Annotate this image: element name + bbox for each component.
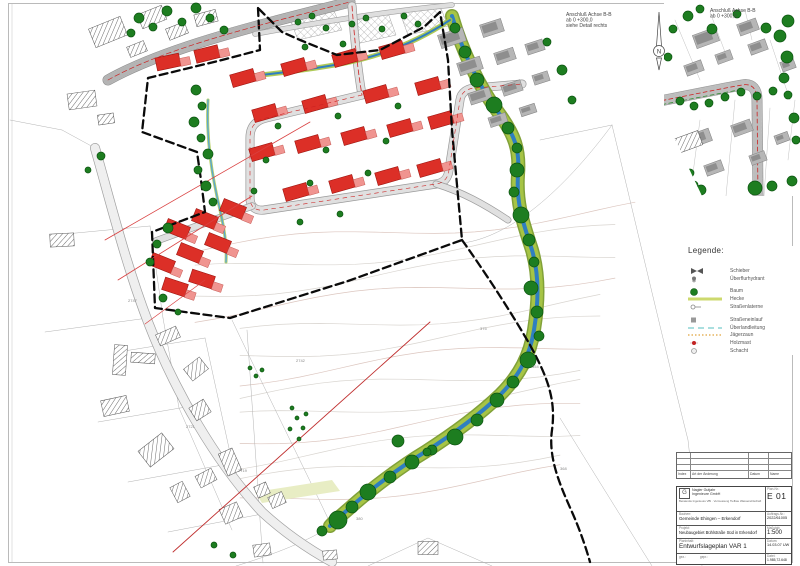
inset-planned-building (666, 189, 677, 198)
existing-building (418, 542, 438, 555)
legend-item: Schacht (688, 347, 796, 355)
baum-icon (688, 288, 730, 296)
planned-house (341, 126, 368, 145)
revision-header-name: Name (768, 471, 791, 478)
road-or-stream (95, 148, 332, 562)
legend-item-label: Baum (730, 288, 743, 294)
legend-item-label: Holzmast (730, 340, 751, 346)
tree-icon (194, 166, 202, 174)
tree-icon (301, 426, 305, 430)
plan-nr-value: E 01 (767, 491, 790, 501)
tree-icon (323, 147, 329, 153)
schacht-icon (688, 347, 730, 355)
existing-building (525, 39, 546, 55)
tree-icon (415, 21, 421, 27)
parcel-line (247, 330, 263, 563)
legend-items: SchieberÜberflurhydrantBaumHeckeStraßenl… (688, 267, 796, 355)
tree-icon (384, 471, 396, 483)
tree-icon (230, 552, 236, 558)
planned-garage (387, 87, 399, 97)
tree-icon (297, 437, 301, 441)
revision-header-row: Index Art der Änderung Datum Name (677, 470, 791, 478)
datei-value: 1.985,72.648 (767, 558, 790, 563)
tree-icon (676, 97, 684, 105)
tree-icon (159, 294, 167, 302)
planned-house (341, 124, 377, 146)
tree-icon (395, 103, 401, 109)
jaegerzaun-icon (688, 331, 730, 339)
existing-building (131, 352, 156, 364)
tree-icon (490, 393, 504, 407)
title-block: Index Art der Änderung Datum Name G Nagl… (676, 452, 792, 565)
planned-house (375, 166, 402, 185)
tree-icon (705, 99, 713, 107)
tree-icon (335, 113, 341, 119)
tree-icon (450, 23, 460, 33)
planinhalt-value: Entwurfslageplan VAR 1 (679, 543, 763, 550)
legend-panel: Legende: SchieberÜberflurhydrantBaumHeck… (688, 246, 796, 355)
planned-garage (273, 145, 285, 155)
road-or-stream (95, 148, 332, 562)
tree-icon (337, 211, 343, 217)
planned-garage (211, 282, 223, 293)
tree-icon (191, 85, 201, 95)
tree-icon (509, 187, 519, 197)
legend-item-label: Überlandleitung (730, 325, 765, 331)
tree-icon (263, 157, 269, 163)
tree-icon (779, 73, 789, 83)
planned-house (363, 84, 390, 103)
existing-building (519, 103, 537, 117)
legend-item-label: Hecke (730, 296, 744, 302)
legend-item: Überlandleitung (688, 324, 796, 332)
planned-house (332, 46, 368, 68)
tree-icon (737, 88, 745, 96)
parcel-number: 354 (532, 364, 539, 369)
tree-icon (557, 65, 567, 75)
parcel-number: 2721 (186, 424, 196, 429)
plan-sheet: { "annotations": { "anschluss_left": ["A… (0, 0, 800, 566)
tree-icon (507, 376, 519, 388)
existing-building (101, 395, 130, 416)
tree-icon (203, 149, 213, 159)
legend-item: Straßeneinlauf (688, 316, 796, 324)
existing-building (101, 395, 130, 416)
planned-house (189, 269, 216, 289)
revision-header-date: Datum (748, 471, 768, 478)
planned-garage (254, 71, 266, 81)
tree-icon (251, 188, 257, 194)
annotation-anschluss-left: Anschluß Achse B-Bab 0 +300,0siehe Detai… (566, 12, 612, 29)
tree-icon (162, 6, 172, 16)
planned-house (375, 164, 411, 186)
tree-icon (568, 96, 576, 104)
tree-icon (153, 240, 161, 248)
existing-building (195, 468, 217, 488)
existing-building (480, 18, 505, 37)
planned-garage (319, 137, 331, 147)
tree-icon (317, 526, 327, 536)
tree-icon (707, 24, 717, 34)
tree-icon (248, 366, 252, 370)
tree-icon (774, 30, 786, 42)
planned-house (283, 182, 310, 201)
parcel-line (560, 418, 652, 566)
planned-garage (184, 290, 196, 301)
tree-icon (696, 185, 706, 195)
tree-icon (782, 15, 794, 27)
tree-icon (297, 219, 303, 225)
existing-building (418, 542, 438, 555)
planned-house (230, 66, 266, 88)
planned-house (417, 158, 444, 177)
planned-house (230, 68, 257, 87)
planned-house (329, 174, 356, 193)
planned-house (162, 277, 189, 297)
planned-house (415, 74, 451, 96)
tree-icon (254, 374, 258, 378)
tree-icon (175, 309, 181, 315)
tree-icon (534, 331, 544, 341)
tree-icon (349, 21, 355, 27)
tree-icon (295, 19, 301, 25)
tree-icon (302, 44, 308, 50)
planned-house (302, 92, 338, 114)
bauherr-value: Gemeinde Ehingen – Erkendorf (679, 516, 763, 521)
existing-building (88, 16, 127, 47)
revision-header-index: Index (677, 471, 690, 478)
legend-item: Schieber (688, 267, 796, 275)
tree-icon (471, 414, 483, 426)
existing-building (184, 357, 209, 381)
existing-building (170, 481, 190, 503)
tree-icon (513, 207, 529, 223)
existing-building (67, 90, 97, 110)
legend-item: Holzmast (688, 339, 796, 347)
planned-garage (218, 48, 230, 58)
planned-house (302, 94, 329, 113)
inset-planned-building (666, 189, 677, 198)
contour-line (195, 256, 615, 297)
parcel-number: 380 (356, 516, 363, 521)
tree-icon (531, 306, 543, 318)
tree-icon (761, 23, 771, 33)
gepr-label: gepr.: (700, 555, 708, 563)
existing-building (50, 233, 75, 247)
planned-house (363, 82, 399, 104)
company-name-line2: Ingenieure GmbH (692, 492, 720, 496)
north-arrow-label: N (657, 50, 661, 56)
tree-icon (696, 5, 704, 13)
tree-icon (405, 455, 419, 469)
hydrant-icon (688, 275, 730, 283)
tree-icon (211, 542, 217, 548)
tree-icon (379, 26, 385, 32)
legend-item: Straßenlaterne (688, 303, 796, 311)
tree-icon (346, 501, 358, 513)
legend-item-label: Schieber (730, 268, 750, 274)
existing-building (170, 481, 190, 503)
parcel-number: 2747 (128, 298, 138, 303)
tree-icon (486, 97, 502, 113)
existing-building (219, 502, 243, 524)
legend-item-label: Schacht (730, 348, 748, 354)
legend-item: Jägerzaun (688, 332, 796, 340)
legend-item: Überflurhydrant (688, 275, 796, 283)
inset-planned-building (666, 178, 681, 191)
tree-icon (288, 427, 292, 431)
existing-building (323, 550, 338, 560)
tree-icon (401, 13, 407, 19)
existing-building (253, 543, 272, 557)
tree-icon (85, 167, 91, 173)
company-info: Beratende Ingenieure VBI · Vermessung Ti… (679, 500, 763, 503)
title-block-main: G Nagler Gutjahr Ingenieure GmbH Beraten… (676, 486, 792, 565)
legend-title: Legende: (688, 246, 796, 255)
planned-house (188, 269, 225, 292)
tree-icon (260, 368, 264, 372)
parcel-line (10, 120, 62, 130)
tree-icon (329, 511, 347, 529)
roads-and-stream (95, 2, 538, 562)
tree-icon (323, 25, 329, 31)
tree-icon (201, 181, 211, 191)
projekt-value: Neubaugebiet Bühlstraße Süd in Erkendorf (679, 530, 763, 535)
tree-icon (470, 73, 484, 87)
planned-house (329, 172, 365, 194)
tree-icon (523, 234, 535, 246)
tree-icon (365, 170, 371, 176)
planned-house (176, 242, 203, 263)
tree-icon (307, 180, 313, 186)
existing-building (127, 41, 148, 58)
tree-icon (529, 257, 539, 267)
legend-item: Baum (688, 288, 796, 296)
planned-garage (399, 169, 411, 179)
tree-icon (769, 87, 777, 95)
tree-icon (784, 91, 792, 99)
tree-icon (669, 25, 677, 33)
tree-icon (792, 136, 800, 144)
tree-icon (748, 181, 762, 195)
tree-icon (787, 176, 797, 186)
parcel-number: 2719 (238, 468, 248, 473)
planned-house (204, 232, 241, 257)
planned-house (204, 232, 231, 253)
tree-icon (690, 102, 698, 110)
tree-icon (134, 13, 144, 23)
contour-line (195, 225, 615, 266)
legend-item: Hecke (688, 295, 796, 303)
existing-building (127, 41, 148, 58)
contour-line (195, 278, 615, 322)
parcel-number: 368 (560, 466, 567, 471)
existing-building (138, 433, 174, 467)
planned-house (176, 242, 213, 267)
existing-building (112, 345, 127, 376)
tree-icon (220, 26, 228, 34)
auftrag-value: 2022/61005 (767, 516, 790, 521)
company-logo: G (679, 488, 690, 499)
existing-building (97, 113, 114, 125)
contour-line (240, 294, 600, 328)
existing-building (195, 468, 217, 488)
legend-item-label: Überflurhydrant (730, 276, 764, 282)
tree-icon (206, 14, 214, 22)
existing-building (156, 326, 181, 346)
parcel-line (62, 130, 95, 148)
tree-icon (191, 3, 201, 13)
datum-value: 14.03.07 UW (767, 543, 790, 548)
tree-icon (363, 15, 369, 21)
revision-header-change: Art der Änderung (690, 471, 748, 478)
tree-icon (304, 412, 308, 416)
tree-icon (502, 122, 514, 134)
parcel-line (540, 125, 612, 140)
tree-icon (512, 143, 522, 153)
tree-icon (683, 11, 693, 21)
tree-icon (197, 134, 205, 142)
planned-garage (307, 185, 319, 195)
planned-house (281, 55, 317, 77)
planned-house (281, 57, 308, 76)
tree-icon (664, 53, 672, 61)
legend-item-label: Jägerzaun (730, 332, 753, 338)
existing-building (219, 502, 243, 524)
massstab-value: 1:500 (767, 530, 790, 537)
existing-building (532, 71, 550, 85)
planned-garage (353, 177, 365, 187)
tree-icon (392, 435, 404, 447)
existing-building (88, 16, 127, 47)
existing-building (67, 90, 97, 110)
tree-icon (781, 51, 793, 63)
planned-house (387, 116, 423, 138)
parcel-number: 2742 (296, 358, 306, 363)
existing-building (323, 550, 338, 560)
parcel-line (463, 125, 612, 243)
tree-icon (189, 117, 199, 127)
hecke-icon (688, 295, 730, 303)
tree-icon (127, 29, 135, 37)
tree-icon (753, 92, 761, 100)
tree-icon (295, 416, 299, 420)
contour-line (240, 316, 600, 357)
existing-building (97, 113, 114, 125)
tree-icon (543, 38, 551, 46)
tree-icon (149, 23, 157, 31)
tree-icon (383, 138, 389, 144)
north-arrow: N (654, 12, 665, 70)
tree-icon (767, 181, 777, 191)
tree-icon (340, 41, 346, 47)
tree-icon (290, 406, 294, 410)
tree-icon (198, 102, 206, 110)
strassenlaterne-icon (688, 303, 730, 311)
existing-building (112, 345, 127, 376)
tree-icon (510, 163, 524, 177)
existing-building (253, 543, 272, 557)
existing-building (184, 357, 209, 381)
planned-house (295, 134, 322, 153)
tree-icon (178, 18, 186, 26)
tree-icon (97, 152, 105, 160)
inset-path (680, 170, 688, 178)
tree-icon (146, 258, 154, 266)
tree-icon (309, 13, 315, 19)
tree-icon (789, 113, 799, 123)
strasseneinlauf-icon (688, 316, 730, 324)
legend-item-label: Straßeneinlauf (730, 317, 763, 323)
ueberlandleitung-icon (688, 324, 730, 332)
inset-planned-building (666, 178, 681, 191)
planned-garage (365, 129, 377, 139)
planned-garage (411, 121, 423, 131)
planned-house (387, 118, 414, 137)
tree-icon (360, 484, 376, 500)
parcel-line (168, 514, 262, 532)
boundary-or-axis (118, 196, 252, 280)
tree-icon (447, 429, 463, 445)
revision-table: Index Art der Änderung Datum Name (676, 452, 792, 479)
planned-garage (180, 56, 191, 66)
existing-building (138, 433, 174, 467)
tree-icon (690, 181, 698, 189)
holzmast-icon (688, 339, 730, 347)
existing-building (156, 326, 181, 346)
existing-building (494, 47, 517, 65)
existing-building (131, 352, 156, 364)
tree-icon (209, 198, 217, 206)
parcel-number: 375 (480, 326, 487, 331)
gez-label: gez.: (679, 555, 686, 563)
boundary-or-axis (142, 8, 462, 318)
planned-house (415, 76, 442, 95)
tree-icon (686, 169, 694, 177)
schieber-icon (688, 267, 730, 275)
tree-icon (275, 123, 281, 129)
tree-icon (459, 46, 471, 58)
tree-icon (163, 223, 173, 233)
tree-icon (721, 93, 729, 101)
tree-icon (524, 281, 538, 295)
legend-item-label: Straßenlaterne (730, 304, 763, 310)
tree-icon (423, 448, 431, 456)
parcel-line (45, 318, 148, 332)
existing-building (50, 233, 75, 247)
contour-line (240, 370, 580, 398)
